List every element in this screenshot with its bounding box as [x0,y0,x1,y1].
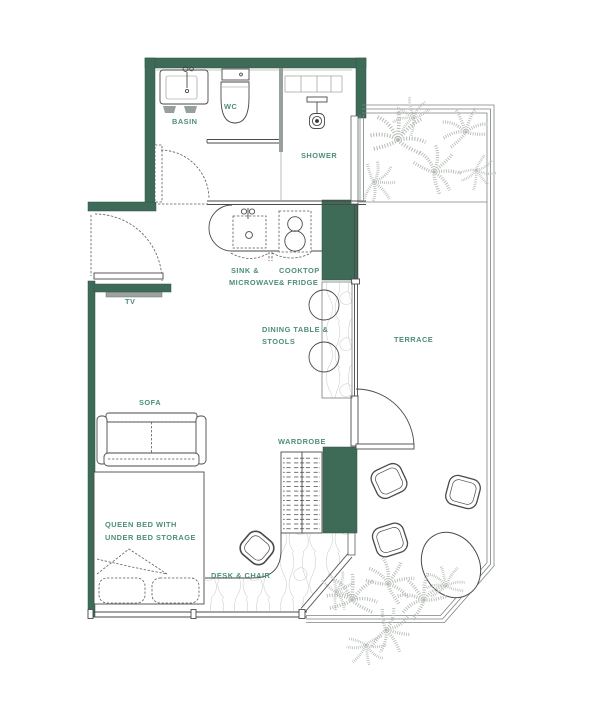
floor-plan-page: BASIN WC SHOWER SINK & MICROWAVE COOKTOP… [0,0,600,715]
shower-partition [279,68,283,152]
label-bed-1: QUEEN BED WITH [105,520,177,529]
label-cooktop-2: & FRIDGE [279,278,318,287]
wall-entry-top [88,202,156,211]
shower-right-wall [351,116,358,204]
sofa-seat-front [104,453,199,466]
dining-table [322,282,352,398]
label-desk: DESK & CHAIR [211,571,271,580]
sofa-back [106,413,197,422]
label-wc: WC [224,102,237,111]
label-dining-1: DINING TABLE & [262,325,329,334]
wall-tv [94,284,171,292]
floor-plan-drawing: BASIN WC SHOWER SINK & MICROWAVE COOKTOP… [0,0,600,715]
bed-pillow [152,578,199,603]
label-tv: TV [125,297,135,306]
terrace-door-leaf [356,444,414,449]
label-shower: SHOWER [301,151,337,160]
label-dining-2: STOOLS [262,337,295,346]
label-sink-1: SINK & [231,266,259,275]
wall-kitchen-right [322,200,358,280]
label-sofa: SOFA [139,398,161,407]
entry-door-leaf [94,273,163,279]
kitchen-cooktop [279,211,311,252]
label-terrace: TERRACE [394,335,433,344]
wall-bath-top [145,58,366,68]
wc-fixture [221,69,249,123]
window-mullion [88,610,93,619]
window-mullion [299,610,305,619]
wall-wardrobe-right [323,447,357,533]
terrace-door-closed [351,396,358,446]
basin-foot [163,106,176,113]
label-basin: BASIN [172,117,198,126]
label-sink-2: MICROWAVE [229,278,279,287]
bed-pillow [99,578,145,603]
wall-bath-left [145,58,155,203]
window-mullion [191,610,196,619]
basin-foot [184,106,197,113]
bathroom-door-leaf [155,145,162,202]
label-wardrobe: WARDROBE [278,437,326,446]
label-cooktop-1: COOKTOP [279,266,320,275]
label-bed-2: UNDER BED STORAGE [105,533,196,542]
wardrobe-unit [281,452,322,533]
